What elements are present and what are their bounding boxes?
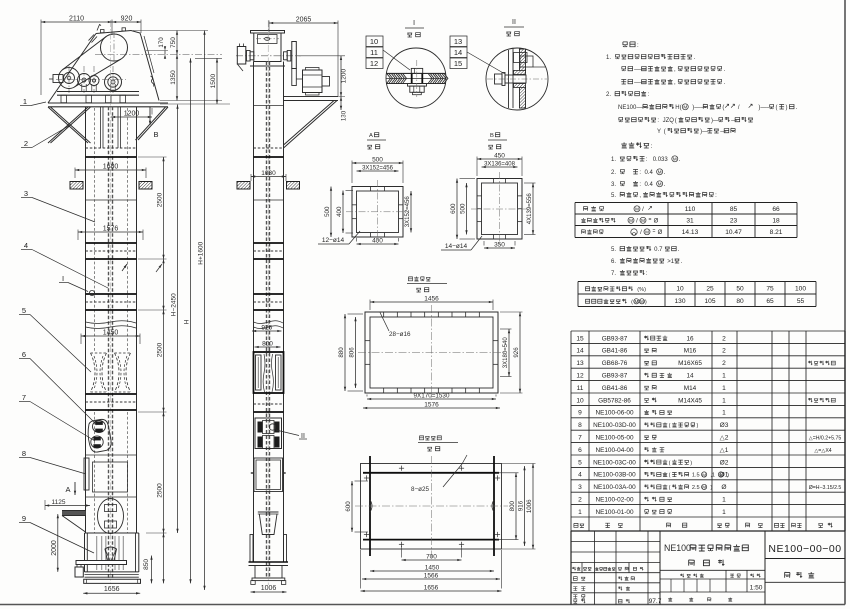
svg-text:H(: H( [675,105,681,111]
svg-text:1: 1 [722,385,726,392]
svg-text:1: 1 [722,509,726,516]
svg-text:1566: 1566 [424,573,439,580]
svg-text:3X136=408: 3X136=408 [484,162,516,168]
svg-text:=: = [649,217,652,223]
svg-text:M: M [629,218,633,223]
svg-text:2500: 2500 [157,192,164,207]
svg-text:M: M [635,207,639,212]
svg-text:2: 2 [722,335,726,342]
svg-text:5.: 5. [611,247,616,253]
svg-text:1.: 1. [606,55,611,61]
svg-text:6: 6 [22,350,26,359]
svg-text:0.033: 0.033 [653,157,669,163]
svg-text:GB93-87: GB93-87 [602,373,628,380]
svg-text:(: ( [669,460,671,466]
svg-text:(: ( [675,118,677,124]
svg-text:↗: ↗ [647,205,652,212]
svg-text:4: 4 [578,472,582,479]
svg-text:△1: △1 [720,447,729,454]
svg-text:23: 23 [730,218,738,225]
svg-text:1: 1 [722,397,726,404]
svg-text:1: 1 [722,497,726,504]
svg-text:Ø1: Ø1 [720,472,729,479]
svg-text:5: 5 [22,306,26,315]
svg-text:): ) [690,460,692,466]
svg-text:NE100-03B-00: NE100-03B-00 [593,472,636,479]
svg-text:): ) [645,300,647,306]
svg-text:M: M [658,182,662,187]
svg-text:H+1600: H+1600 [198,241,205,264]
svg-text:12: 12 [370,59,378,68]
svg-text:2: 2 [24,139,28,148]
svg-text:NE100-02-00: NE100-02-00 [595,497,633,504]
svg-text:(: ( [669,473,671,479]
svg-text:3: 3 [24,189,28,198]
svg-text:8.21: 8.21 [770,229,783,236]
svg-text:16: 16 [686,335,694,342]
svg-text:3.: 3. [611,182,616,188]
svg-text:500: 500 [324,206,331,217]
svg-text:4: 4 [24,241,28,250]
svg-text:450: 450 [494,153,505,160]
svg-text:0.4: 0.4 [645,170,654,176]
svg-text:14.13: 14.13 [682,229,699,236]
svg-text:Ø=H−3.15/2.5: Ø=H−3.15/2.5 [809,485,842,491]
svg-text:1030: 1030 [261,170,276,177]
svg-text:M: M [640,299,644,304]
svg-text:Ø3: Ø3 [720,422,729,429]
svg-text:GB41-86: GB41-86 [602,348,628,355]
svg-text:806: 806 [349,347,356,358]
svg-text:1: 1 [722,373,726,380]
svg-text:)—: )— [711,118,719,124]
svg-text:↗: ↗ [747,103,753,110]
svg-text:NE100-04-00: NE100-04-00 [595,447,633,454]
svg-text:(: ( [631,300,633,306]
svg-text:Ø: Ø [721,484,726,491]
svg-text:916: 916 [518,500,525,511]
svg-text:(: ( [669,485,671,491]
svg-text:5: 5 [578,459,582,466]
svg-text:2110: 2110 [69,16,84,23]
svg-text:NE100: NE100 [664,543,691,553]
svg-text:M14: M14 [684,385,697,392]
svg-text:1.5: 1.5 [692,473,700,479]
svg-text:350: 350 [494,242,505,249]
svg-text:3X152=456: 3X152=456 [362,166,394,172]
svg-text:15: 15 [454,59,462,68]
svg-text:A: A [65,485,70,494]
svg-text:66: 66 [772,206,780,213]
svg-text:97.7: 97.7 [649,598,662,605]
svg-text:1200: 1200 [124,111,140,118]
svg-text:11: 11 [577,385,584,392]
svg-text:△=H/0.2+5.75: △=H/0.2+5.75 [809,436,842,442]
svg-text:800: 800 [262,341,273,348]
svg-text:850: 850 [143,559,150,570]
svg-text:(: ( [669,423,671,429]
svg-text:2.5: 2.5 [692,485,700,491]
svg-text:): ) [786,105,788,111]
svg-text:55: 55 [797,298,805,305]
svg-text:1576: 1576 [424,402,439,409]
svg-text:1006: 1006 [261,585,277,592]
svg-text:14: 14 [454,48,462,57]
svg-text:NE100−00−00: NE100−00−00 [768,543,841,555]
svg-text:13: 13 [576,360,584,367]
svg-text:750: 750 [170,37,177,48]
svg-text:Y: Y [657,129,661,135]
svg-text:2500: 2500 [157,342,164,357]
svg-text:18: 18 [772,218,780,225]
svg-text:)——: )—— [692,105,706,111]
svg-text:(%): (%) [637,287,646,293]
svg-text:400: 400 [336,206,343,217]
svg-text:880: 880 [338,347,345,358]
svg-text:1656: 1656 [104,586,120,593]
svg-text:H−2450: H−2450 [171,293,178,316]
svg-text:2.: 2. [611,170,616,176]
svg-text:NE100——: NE100—— [618,105,648,111]
svg-text:110: 110 [685,206,696,213]
svg-text:80: 80 [736,298,744,305]
svg-text:△=△X4: △=△X4 [814,448,831,454]
svg-text:Ø: Ø [658,230,663,236]
svg-text:11: 11 [370,48,378,57]
svg-text:1576: 1576 [103,226,119,233]
svg-text:NE100-05-00: NE100-05-00 [595,435,633,442]
svg-text:2065: 2065 [296,17,312,24]
svg-text:GB93-87: GB93-87 [602,335,628,342]
svg-text:1456: 1456 [424,296,439,303]
svg-text:M16X65: M16X65 [678,360,702,367]
svg-text:JZQ: JZQ [663,118,675,124]
svg-text:1: 1 [578,509,582,516]
svg-text:M14X45: M14X45 [678,397,702,404]
svg-text:1656: 1656 [424,585,439,592]
svg-text:1500: 1500 [210,74,217,89]
svg-text:4X139=556: 4X139=556 [527,193,533,225]
svg-text:2000: 2000 [51,540,58,556]
svg-text:1:50: 1:50 [750,585,763,592]
svg-text:130: 130 [341,110,348,121]
svg-text:Ø2: Ø2 [720,459,729,466]
svg-text:920: 920 [121,16,133,23]
svg-text:6: 6 [578,447,582,454]
svg-text:1450: 1450 [103,330,119,337]
svg-text:—: — [720,129,726,135]
svg-text:NE100-03A-00: NE100-03A-00 [593,484,636,491]
svg-text:10: 10 [676,286,684,293]
svg-text:0.7: 0.7 [654,247,663,253]
svg-text:3X180=540: 3X180=540 [503,337,509,369]
svg-text:6.: 6. [611,259,616,265]
svg-text::: : [637,42,639,49]
svg-text:): ) [710,485,712,491]
svg-text::: : [651,143,653,150]
svg-text:15: 15 [576,335,584,342]
svg-text:1450: 1450 [425,565,440,572]
svg-text:1680: 1680 [103,164,119,171]
svg-text:7: 7 [22,393,26,402]
svg-text:1006: 1006 [526,499,533,513]
svg-text:2: 2 [722,348,726,355]
svg-text:(: ( [775,105,777,111]
svg-text:1200: 1200 [341,69,348,84]
svg-text:13: 13 [454,37,462,46]
svg-text:1: 1 [722,410,726,417]
svg-text:NE100-06-00: NE100-06-00 [595,410,633,417]
svg-text:M: M [634,299,638,304]
svg-text:=: = [653,229,656,235]
svg-text:14: 14 [576,348,584,355]
svg-text:△2: △2 [720,435,729,442]
svg-text:NE100-03C-00: NE100-03C-00 [593,459,636,466]
svg-text:I: I [62,274,64,283]
svg-text:926: 926 [513,347,520,358]
svg-text:↗↗: ↗↗ [724,103,736,110]
svg-text:B: B [153,130,158,139]
svg-text:9: 9 [578,410,582,417]
svg-text:NE100-03D-00: NE100-03D-00 [593,422,636,429]
svg-text:800: 800 [509,500,516,511]
svg-text:>1: >1 [667,259,675,265]
svg-text:3: 3 [578,484,582,491]
svg-text:2: 2 [722,360,726,367]
svg-text:1350: 1350 [170,70,177,85]
svg-text:——: —— [634,67,646,73]
svg-text:GB68-76: GB68-76 [602,360,628,367]
svg-text:12−ø14: 12−ø14 [322,237,345,244]
svg-text:M: M [645,230,649,235]
svg-text:GB41-86: GB41-86 [602,385,628,392]
svg-text:600: 600 [450,203,457,214]
svg-text:400: 400 [372,238,383,245]
svg-text:,1: ,1 [710,473,715,479]
svg-text:1125: 1125 [52,499,66,506]
svg-text:8−ø25: 8−ø25 [411,486,430,493]
svg-text:500: 500 [372,157,383,164]
svg-text:—: — [731,118,737,124]
svg-text:7: 7 [578,435,582,442]
svg-text:105: 105 [704,298,715,305]
svg-text:M: M [683,105,687,110]
svg-text:M: M [673,157,677,162]
svg-text:50: 50 [736,286,744,293]
svg-text:8: 8 [578,422,582,429]
svg-text:): ) [696,423,698,429]
svg-text:5.: 5. [611,193,616,199]
svg-text:10: 10 [370,37,378,46]
svg-text:GB5782-86: GB5782-86 [598,397,631,404]
svg-text:2.: 2. [606,92,611,98]
svg-text:85: 85 [730,206,738,213]
svg-text:12: 12 [576,373,584,380]
svg-text:H: H [184,319,191,324]
svg-text:7.: 7. [611,271,616,277]
svg-text:B: B [490,133,494,139]
svg-text:1: 1 [23,97,27,106]
svg-text:M: M [641,218,645,223]
svg-text:926: 926 [261,325,272,332]
svg-text:75: 75 [766,286,774,293]
svg-text:25: 25 [706,286,714,293]
svg-text:(: ( [664,129,666,135]
svg-text:Ø: Ø [654,219,659,225]
svg-text:10: 10 [576,397,584,404]
svg-text:500: 500 [460,203,467,214]
svg-text:9: 9 [22,514,26,523]
svg-text:0.4: 0.4 [645,182,654,188]
svg-text:1.: 1. [611,157,616,163]
svg-text:)—: )— [700,129,708,135]
svg-text:10.47: 10.47 [725,229,742,236]
svg-text:3X152=456: 3X152=456 [405,196,411,228]
svg-text:170: 170 [158,37,165,48]
svg-text:——: —— [634,80,646,86]
svg-text:)——: )—— [758,105,772,111]
svg-text:14: 14 [686,373,694,380]
svg-text:M: M [702,472,706,477]
svg-text:28−ø16: 28−ø16 [389,331,411,338]
svg-text:I: I [413,18,415,27]
svg-text:2500: 2500 [157,483,164,498]
svg-text:65: 65 [766,298,774,305]
svg-text:8: 8 [22,449,26,458]
svg-text:M: M [702,485,706,490]
svg-text:9X170=1530: 9X170=1530 [414,393,450,400]
svg-text:600: 600 [345,501,352,512]
svg-text:NE100-01-00: NE100-01-00 [595,509,633,516]
svg-text:14−ø14: 14−ø14 [445,243,468,250]
svg-text:100: 100 [795,286,806,293]
svg-text:II: II [512,19,516,26]
svg-text:A: A [369,133,373,139]
svg-text:2: 2 [578,497,582,504]
svg-text:130: 130 [674,298,685,305]
svg-text:M: M [658,170,662,175]
svg-text:31: 31 [686,218,694,225]
svg-text:M16: M16 [684,348,697,355]
svg-text:700: 700 [426,554,437,561]
